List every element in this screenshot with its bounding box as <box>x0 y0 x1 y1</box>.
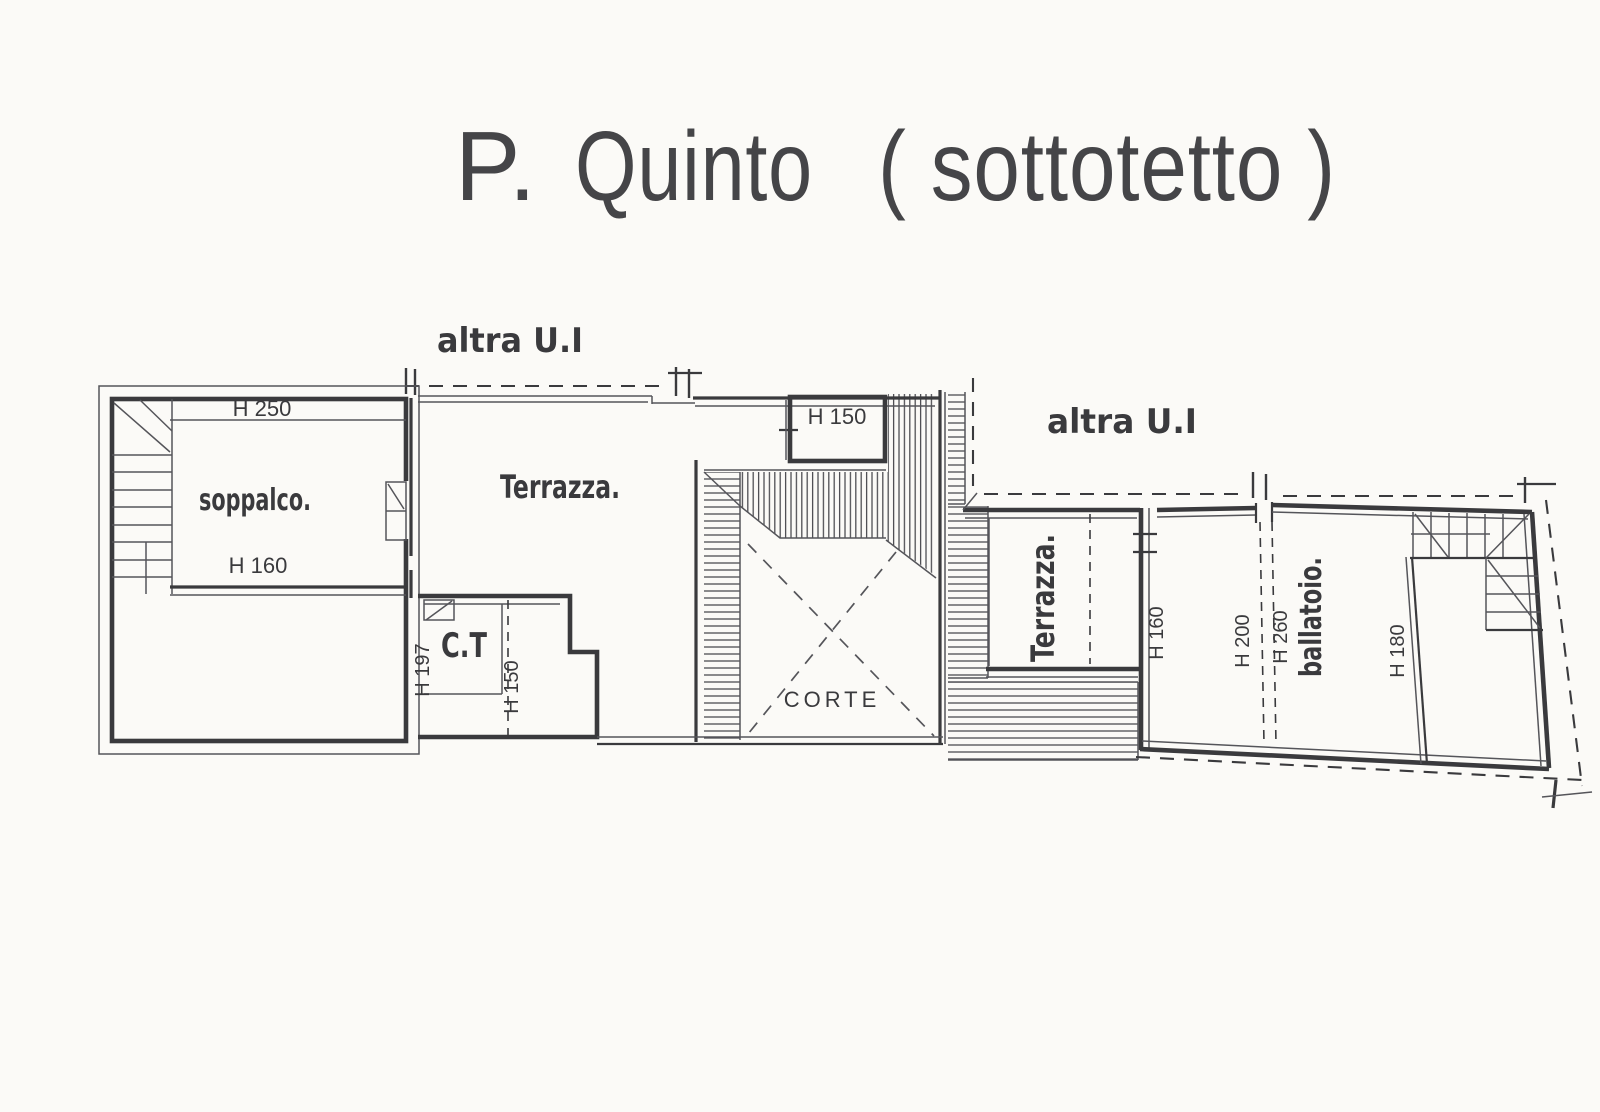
boundary-corner-mark-h <box>1542 792 1592 797</box>
terrazza-right-top-inner <box>963 493 1137 518</box>
label-altra-ui-right: altra U.I <box>1047 402 1197 442</box>
terrazza-right-door-ticks <box>1133 534 1157 552</box>
label-h197: H 197 <box>412 643 434 696</box>
label-h150-room: H 150 <box>808 404 867 429</box>
title-part-sottotetto: ( sottotetto ) <box>878 111 1336 221</box>
label-ct: C.T <box>441 626 488 666</box>
label-h260: H 260 <box>1270 610 1292 663</box>
label-terrazza-right: Terrazza. <box>1024 534 1062 662</box>
label-terrazza-left: Terrazza. <box>500 468 620 506</box>
roof-hatch-courtyard-right <box>886 394 936 576</box>
label-h180: H 180 <box>1387 624 1409 677</box>
roof-hatch-courtyard-top <box>740 472 886 538</box>
stair-treads-horizontal-run <box>1413 512 1503 558</box>
ballatoio-building: H 160 H 200 H 260 ballatoio. H 180 <box>1140 502 1549 769</box>
terrazza-top-wall-thin <box>418 396 695 404</box>
title-part-quinto: Quinto <box>575 111 813 221</box>
boundary-tick-3 <box>1253 472 1266 500</box>
page-title: P. Quinto ( sottotetto ) <box>455 111 1336 221</box>
label-h150-ct: H 150 <box>501 660 523 713</box>
right-staircase <box>1410 512 1543 630</box>
roof-hatch-courtyard-left <box>704 472 740 740</box>
boundary-tick-1 <box>406 368 415 395</box>
scanned-floorplan-page: { "title": { "p": "P.", "quinto": "Quint… <box>0 0 1600 1112</box>
roof-hatch-slope-bottom <box>948 682 1138 760</box>
roof-hatches <box>704 392 1138 760</box>
title-part-p: P. <box>455 111 537 221</box>
ballatoio-top-wall-a-inner <box>1157 515 1256 517</box>
stair-diag-right <box>1486 514 1529 558</box>
label-soppalco: soppalco. <box>199 483 311 518</box>
label-h160-left: H 160 <box>229 553 288 578</box>
label-ballatoio: ballatoio. <box>1294 557 1329 677</box>
floorplan-scan: P. Quinto ( sottotetto ) <box>0 0 1600 1112</box>
roof-hatch-gutter-mid <box>948 506 988 678</box>
label-h160-right: H 160 <box>1146 606 1168 659</box>
roof-hatch-gutter-upper <box>948 392 965 504</box>
stair-cut-diagonals <box>114 400 172 452</box>
stair-treads <box>112 455 172 577</box>
ct-room: C.T H 197 H 150 <box>412 596 597 737</box>
ballatoio-bottom-wall <box>1140 749 1549 769</box>
floorplan-canvas: P. Quinto ( sottotetto ) <box>0 0 1600 1112</box>
boundary-dash-right-edge <box>1546 500 1582 786</box>
label-altra-ui-left: altra U.I <box>437 321 583 361</box>
label-corte: CORTE <box>784 687 881 712</box>
boundary-corner-mark-v <box>1553 780 1556 808</box>
boundary-tick-2 <box>676 367 689 398</box>
label-h250: H 250 <box>233 396 292 421</box>
left-staircase <box>112 399 172 594</box>
ballatoio-right-wall <box>1532 512 1549 768</box>
ballatoio-top-wall-b <box>1272 505 1532 512</box>
ballatoio-door-jambs <box>1256 502 1272 523</box>
left-block: H 250 soppalco. H 160 <box>99 386 419 754</box>
ballatoio-top-wall-a <box>1157 508 1256 510</box>
label-h200: H 200 <box>1232 614 1254 667</box>
